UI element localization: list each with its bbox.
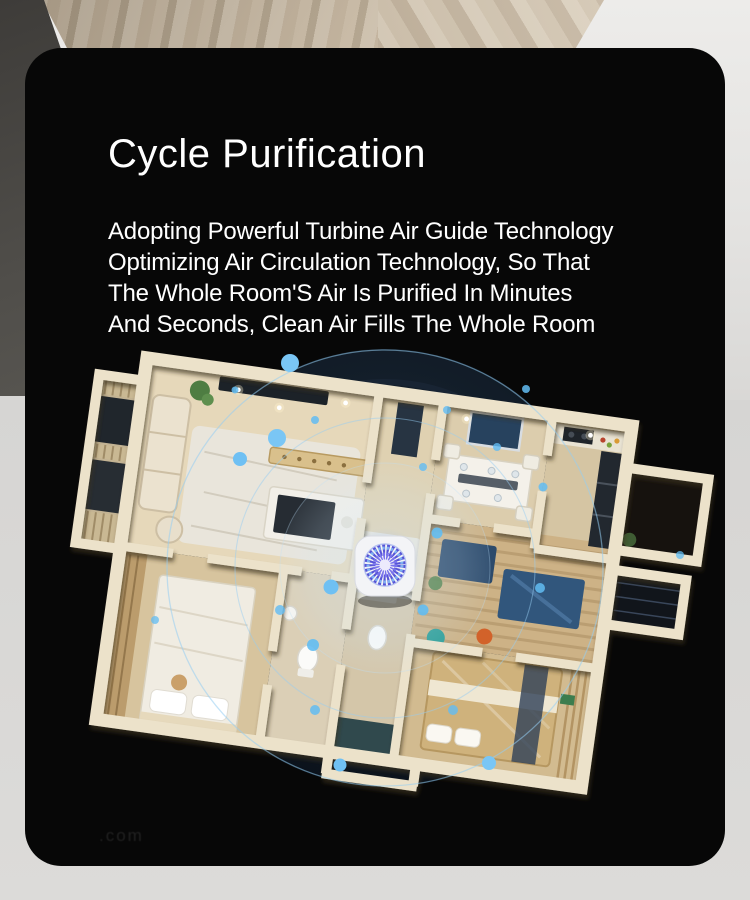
- description-line: The Whole Room'S Air Is Purified In Minu…: [108, 278, 613, 309]
- description-line: And Seconds, Clean Air Fills The Whole R…: [108, 309, 613, 340]
- description-line: Optimizing Air Circulation Technology, S…: [108, 247, 613, 278]
- apartment-scene-graphic: [25, 338, 725, 866]
- description-line: Adopting Powerful Turbine Air Guide Tech…: [108, 216, 613, 247]
- watermark: .com: [99, 826, 144, 846]
- hero-scene: .com: [25, 338, 725, 866]
- hero-card: Cycle Purification Adopting Powerful Tur…: [25, 48, 725, 866]
- page-title: Cycle Purification: [108, 132, 426, 177]
- description-text: Adopting Powerful Turbine Air Guide Tech…: [108, 216, 613, 340]
